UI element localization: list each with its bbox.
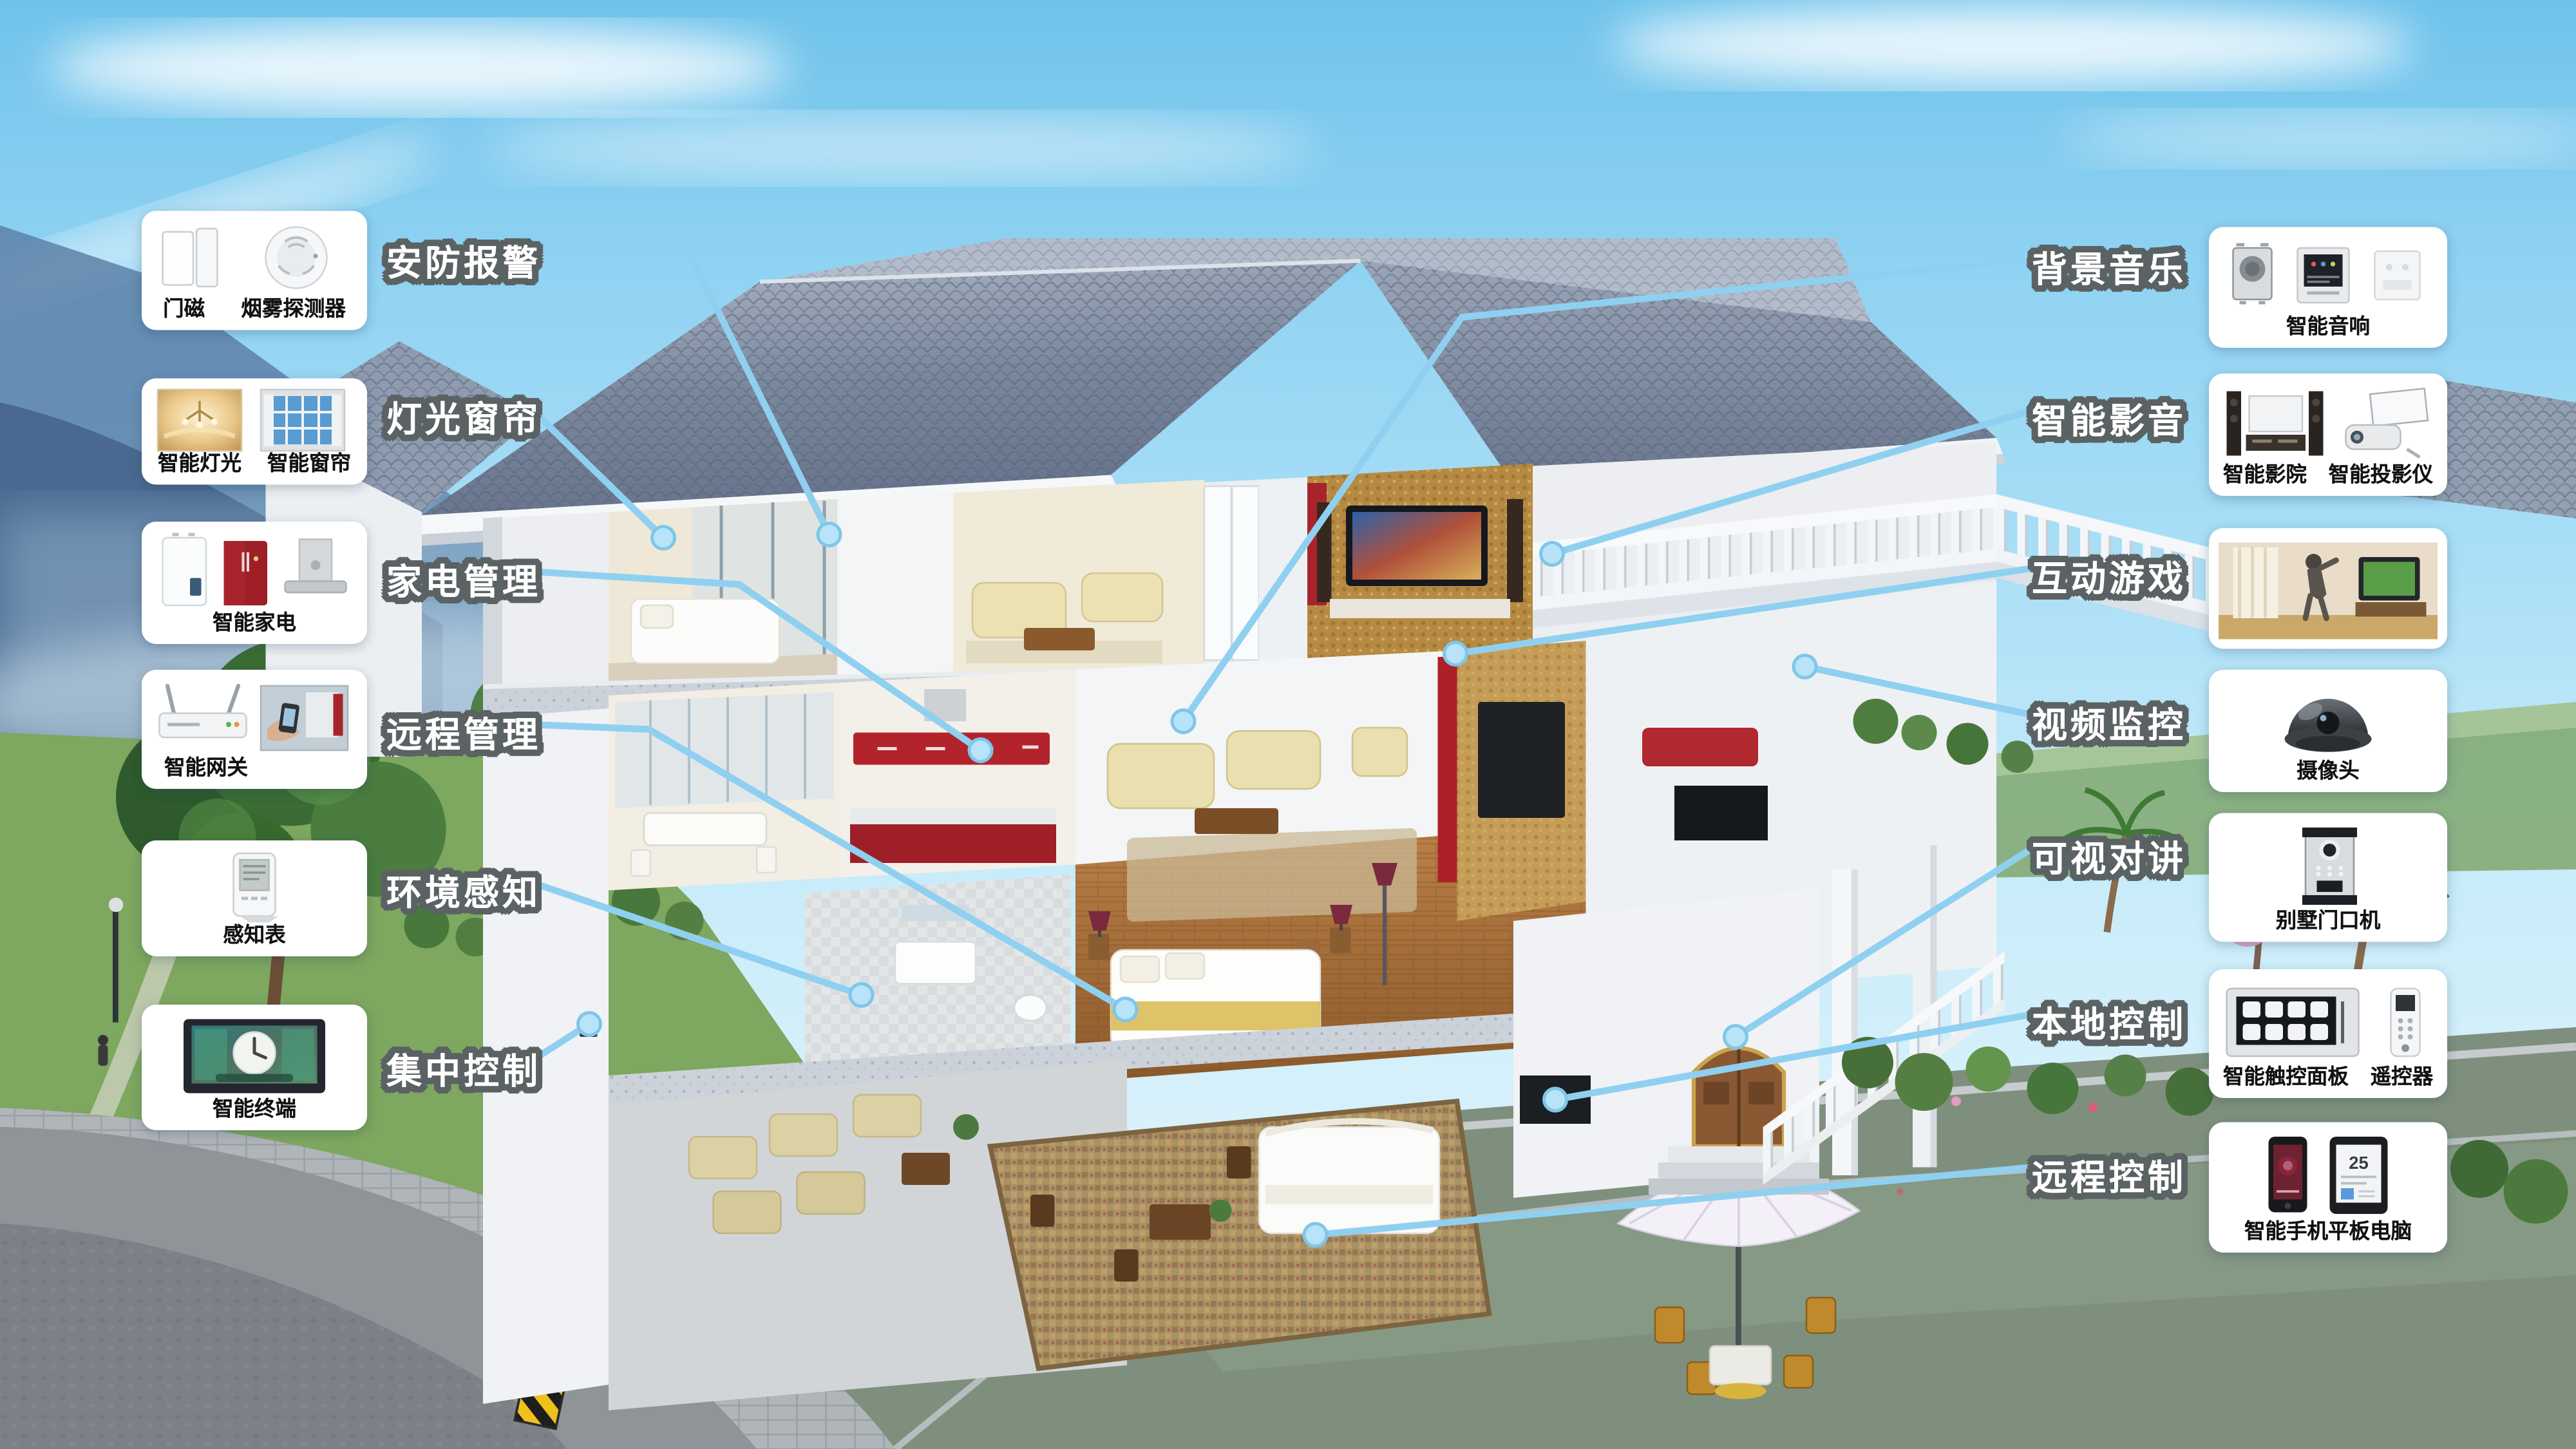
label-background-music: 背景音乐 — [2032, 241, 2186, 293]
dot-environment-sensing — [850, 984, 873, 1007]
music-panel-icon — [2298, 248, 2349, 303]
card-media — [148, 1013, 361, 1099]
smart-home-infographic: 门磁 烟雾探测器 智能灯光 智能窗帘 — [0, 0, 2576, 1449]
line-interactive-games — [1455, 569, 2032, 654]
water-heater-icon — [163, 534, 207, 605]
line-video-intercom — [1736, 849, 2032, 1037]
card-remote-control-devices: 25 智能手机平板电脑 — [2209, 1122, 2447, 1253]
projector-icon — [2346, 388, 2428, 457]
dot-video-surveillance — [1794, 656, 1816, 678]
label-local-control: 本地控制 — [2032, 997, 2186, 1048]
card-media — [2215, 536, 2441, 645]
motion-game-photo — [2219, 542, 2438, 638]
line-background-music — [1184, 260, 2032, 722]
tablet-icon: 25 — [2330, 1137, 2388, 1214]
smart-curtain-icon — [261, 389, 345, 450]
device-caption: 智能终端 — [213, 1098, 296, 1122]
label-interactive-games: 互动游戏 — [2032, 551, 2186, 602]
label-video-intercom: 可视对讲 — [2032, 831, 2186, 882]
card-media — [148, 386, 361, 453]
dot-video-intercom — [1725, 1026, 1747, 1048]
phone-control-photo — [261, 685, 348, 750]
door-intercom-icon — [2302, 827, 2357, 904]
tablet-screen-temp: 25 — [2349, 1153, 2369, 1173]
card-media — [2215, 678, 2441, 761]
card-terminal-devices: 智能终端 — [142, 1005, 367, 1130]
weather-station-icon — [234, 853, 279, 922]
range-hood-icon — [285, 538, 346, 592]
line-video-surveillance — [1805, 667, 2032, 715]
door-sensor-icon — [163, 228, 218, 286]
dot-security-alarm — [818, 524, 840, 546]
card-media — [148, 849, 361, 925]
dome-camera-icon — [2285, 698, 2372, 752]
dot-remote-control — [1304, 1224, 1327, 1246]
device-caption: 门磁 — [163, 298, 205, 322]
smart-gateway-icon — [160, 685, 247, 737]
card-gateway-devices: 智能网关 — [142, 670, 367, 789]
label-lighting-curtains: 灯光窗帘 — [386, 392, 541, 443]
line-appliance-management — [531, 572, 981, 751]
device-caption: 感知表 — [223, 924, 286, 948]
card-media — [2215, 821, 2441, 910]
dot-central-control — [578, 1013, 601, 1036]
touch-panel-icon — [2227, 988, 2359, 1056]
line-av-system — [1552, 411, 2032, 554]
device-caption: 智能音响 — [2286, 316, 2370, 339]
device-caption: 智能触控面板 — [2223, 1066, 2349, 1090]
card-interactive-game-photo — [2209, 528, 2447, 649]
card-media — [148, 530, 361, 612]
remote-control-icon — [2391, 988, 2420, 1056]
device-caption: 别墅门口机 — [2276, 910, 2381, 934]
card-media: 25 — [2215, 1130, 2441, 1220]
device-caption: 摄像头 — [2297, 760, 2360, 784]
card-media — [2215, 978, 2441, 1066]
label-appliance-management: 家电管理 — [386, 554, 541, 605]
line-lighting-curtains — [531, 409, 663, 538]
dot-av-system — [1541, 543, 1564, 565]
dot-appliance-management — [969, 739, 992, 762]
device-caption: 智能手机平板电脑 — [2244, 1220, 2412, 1244]
card-media — [2215, 382, 2441, 464]
dot-lighting-curtains — [652, 527, 675, 549]
device-caption: 智能网关 — [164, 757, 248, 781]
line-environment-sensing — [531, 882, 862, 995]
device-caption: 烟雾探测器 — [241, 298, 346, 322]
home-theater-icon — [2227, 390, 2324, 455]
label-security-alarm: 安防报警 — [386, 235, 541, 287]
refrigerator-icon — [224, 540, 268, 605]
card-door-station-device: 别墅门口机 — [2209, 813, 2447, 942]
card-theater-devices: 智能影院 智能投影仪 — [2209, 374, 2447, 496]
dot-local-control — [1544, 1088, 1567, 1111]
label-av-system: 智能影音 — [2032, 393, 2186, 444]
dot-interactive-games — [1444, 643, 1467, 665]
card-lighting-curtain-devices: 智能灯光 智能窗帘 — [142, 379, 367, 485]
smart-terminal-icon — [184, 1018, 325, 1092]
card-media — [148, 678, 361, 757]
device-caption: 智能灯光 — [158, 453, 241, 477]
label-central-control: 集中控制 — [386, 1043, 541, 1095]
card-local-control-devices: 智能触控面板 遥控器 — [2209, 969, 2447, 1098]
card-camera-device: 摄像头 — [2209, 670, 2447, 792]
wall-speaker-icon — [2233, 245, 2272, 303]
line-security-alarm — [531, 253, 829, 535]
line-remote-control — [1316, 1168, 2032, 1235]
card-appliance-devices: 智能家电 — [142, 522, 367, 644]
white-panel-icon — [2375, 251, 2420, 299]
card-media — [148, 219, 361, 298]
device-caption: 遥控器 — [2371, 1066, 2434, 1090]
card-security-devices: 门磁 烟雾探测器 — [142, 211, 367, 330]
label-remote-management: 远程管理 — [386, 707, 541, 759]
line-local-control — [1555, 1014, 2032, 1100]
label-remote-control: 远程控制 — [2032, 1150, 2186, 1201]
device-caption: 智能家电 — [213, 612, 296, 636]
device-caption: 智能影院 — [2223, 464, 2307, 488]
smart-lighting-icon — [158, 389, 241, 450]
card-audio-devices: 智能音响 — [2209, 227, 2447, 348]
card-media — [2215, 235, 2441, 316]
label-video-surveillance: 视频监控 — [2032, 697, 2186, 749]
dot-remote-management — [1114, 998, 1137, 1021]
device-caption: 智能窗帘 — [267, 453, 351, 477]
smoke-detector-icon — [266, 226, 327, 287]
card-sensor-devices: 感知表 — [142, 840, 367, 956]
line-remote-management — [531, 724, 1126, 1010]
device-caption: 智能投影仪 — [2329, 464, 2434, 488]
dot-background-music — [1172, 710, 1195, 733]
label-environment-sensing: 环境感知 — [386, 865, 541, 916]
smartphone-icon — [2269, 1137, 2307, 1213]
